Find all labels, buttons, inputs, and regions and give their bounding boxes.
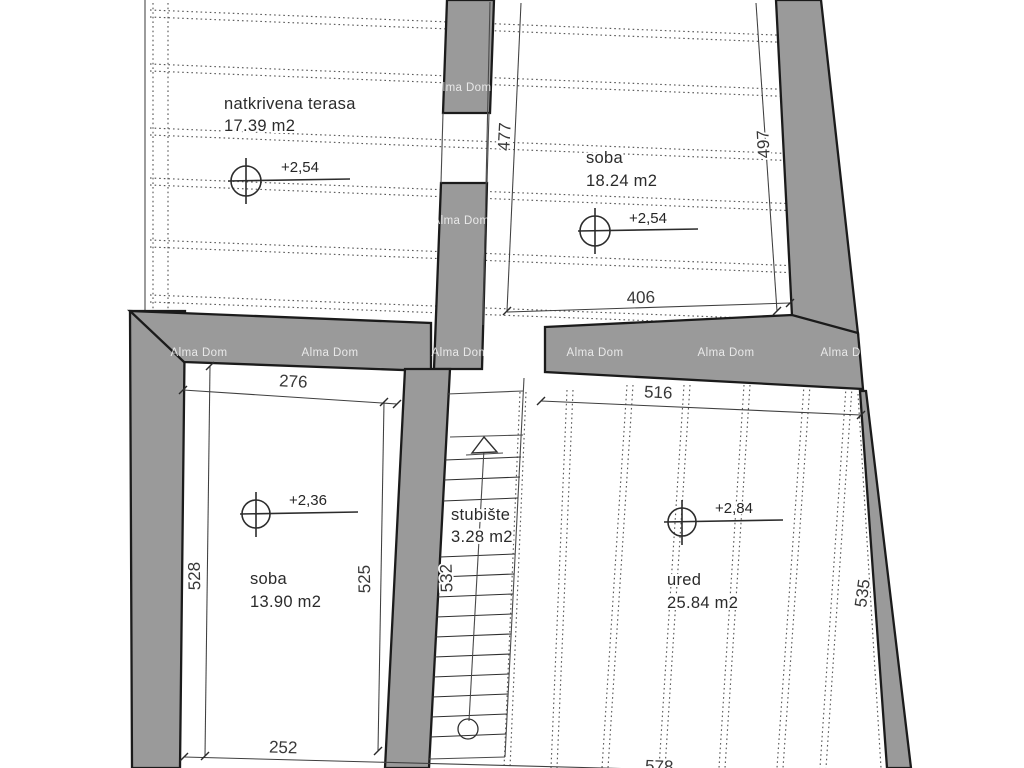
slope-line xyxy=(777,385,804,768)
elevation-value: +2,54 xyxy=(281,159,319,176)
landing-edge-line xyxy=(447,391,523,394)
room-label-soba-gornja: soba xyxy=(586,149,624,167)
wall-right-wedge xyxy=(860,391,911,768)
stair-tread xyxy=(440,554,515,557)
elevation-value: +2,36 xyxy=(289,492,327,509)
dim-label-276: 276 xyxy=(279,371,308,391)
terrace-boundary xyxy=(145,0,168,312)
wall-right-upper xyxy=(776,0,858,334)
dim-label-535: 535 xyxy=(851,578,874,609)
stair-bottom-line xyxy=(429,757,505,759)
slope-line xyxy=(602,385,627,768)
dim-label-578: 578 xyxy=(645,757,674,768)
elevation-value: +2,54 xyxy=(629,210,667,227)
room-area-terasa: 17.39 m2 xyxy=(224,117,295,135)
slope-line xyxy=(608,385,633,768)
watermark-text: Alma Dom xyxy=(698,347,755,359)
dim-label-497: 497 xyxy=(753,130,773,159)
slope-line xyxy=(826,387,852,768)
room-label-terasa: natkrivena terasa xyxy=(224,95,356,113)
dim-line-528 xyxy=(205,366,210,756)
watermark-text: Alma Dom xyxy=(821,347,878,359)
dim-line-252-578 xyxy=(184,757,905,768)
room-area-soba-gornja: 18.24 m2 xyxy=(586,172,657,190)
dim-label-406: 406 xyxy=(626,288,655,308)
stair-top-line xyxy=(450,435,523,437)
dim-label-477: 477 xyxy=(494,122,514,151)
stair-tread xyxy=(430,734,506,737)
walkline xyxy=(469,449,484,721)
slope-line xyxy=(719,385,744,768)
stair-walkline xyxy=(458,437,503,739)
wall-left xyxy=(130,311,185,768)
slope-line xyxy=(504,392,520,768)
watermark-text: Alma Dom xyxy=(435,82,492,94)
wall-center-upper xyxy=(443,0,494,113)
stair-tread xyxy=(434,654,510,657)
wall-center-lower xyxy=(434,183,487,369)
elevation-marker-soba-gornja: +2,54 xyxy=(578,208,698,254)
floorplan-page: +2,54 +2,54 +2,36 +2,84 natkrivena teras… xyxy=(0,0,1024,768)
dim-line-525 xyxy=(378,402,384,751)
watermark-text: Alma Dom xyxy=(433,215,490,227)
roof-line xyxy=(150,135,800,161)
dim-label-252: 252 xyxy=(269,738,298,758)
room-area-ured: 25.84 m2 xyxy=(667,594,738,612)
room-label-ured: ured xyxy=(667,571,701,589)
level-lead-line xyxy=(240,512,358,514)
level-lead-line xyxy=(578,229,698,231)
stair-tread xyxy=(435,634,511,637)
stair-tread xyxy=(436,614,512,617)
elevation-value: +2,84 xyxy=(715,500,753,517)
elevation-marker-terasa: +2,54 xyxy=(228,158,350,204)
dim-line-276 xyxy=(183,390,397,404)
dim-label-525: 525 xyxy=(355,565,374,594)
dim-label-516: 516 xyxy=(644,382,673,402)
room-area-soba-donja: 13.90 m2 xyxy=(250,593,321,611)
watermark-text: Alma Dom xyxy=(567,347,624,359)
room-label-stubiste: stubište xyxy=(451,506,510,524)
dim-line-516 xyxy=(541,401,861,415)
slope-line xyxy=(725,385,750,768)
dim-label-532: 532 xyxy=(437,564,457,593)
slope-line xyxy=(783,385,810,768)
slope-line xyxy=(820,387,846,768)
watermark-text: Alma Dom xyxy=(432,347,489,359)
stair-direction-arrow-icon xyxy=(472,437,497,453)
room-label-soba-donja: soba xyxy=(250,570,288,588)
room-area-stubiste: 3.28 m2 xyxy=(451,528,513,546)
dim-line-477 xyxy=(507,3,521,311)
watermark-text: Alma Dom xyxy=(302,347,359,359)
elevation-marker-soba-donja: +2,36 xyxy=(240,492,358,537)
stair-tread xyxy=(443,498,518,501)
window-jamb-line xyxy=(441,113,443,183)
watermark-text: Alma Dom xyxy=(171,347,228,359)
floorplan-drawing: +2,54 +2,54 +2,36 +2,84 natkrivena teras… xyxy=(0,0,1024,768)
elevation-marker-ured: +2,84 xyxy=(664,500,783,545)
dim-label-528: 528 xyxy=(185,562,204,591)
walls xyxy=(130,0,911,768)
stair-tread xyxy=(437,594,513,597)
